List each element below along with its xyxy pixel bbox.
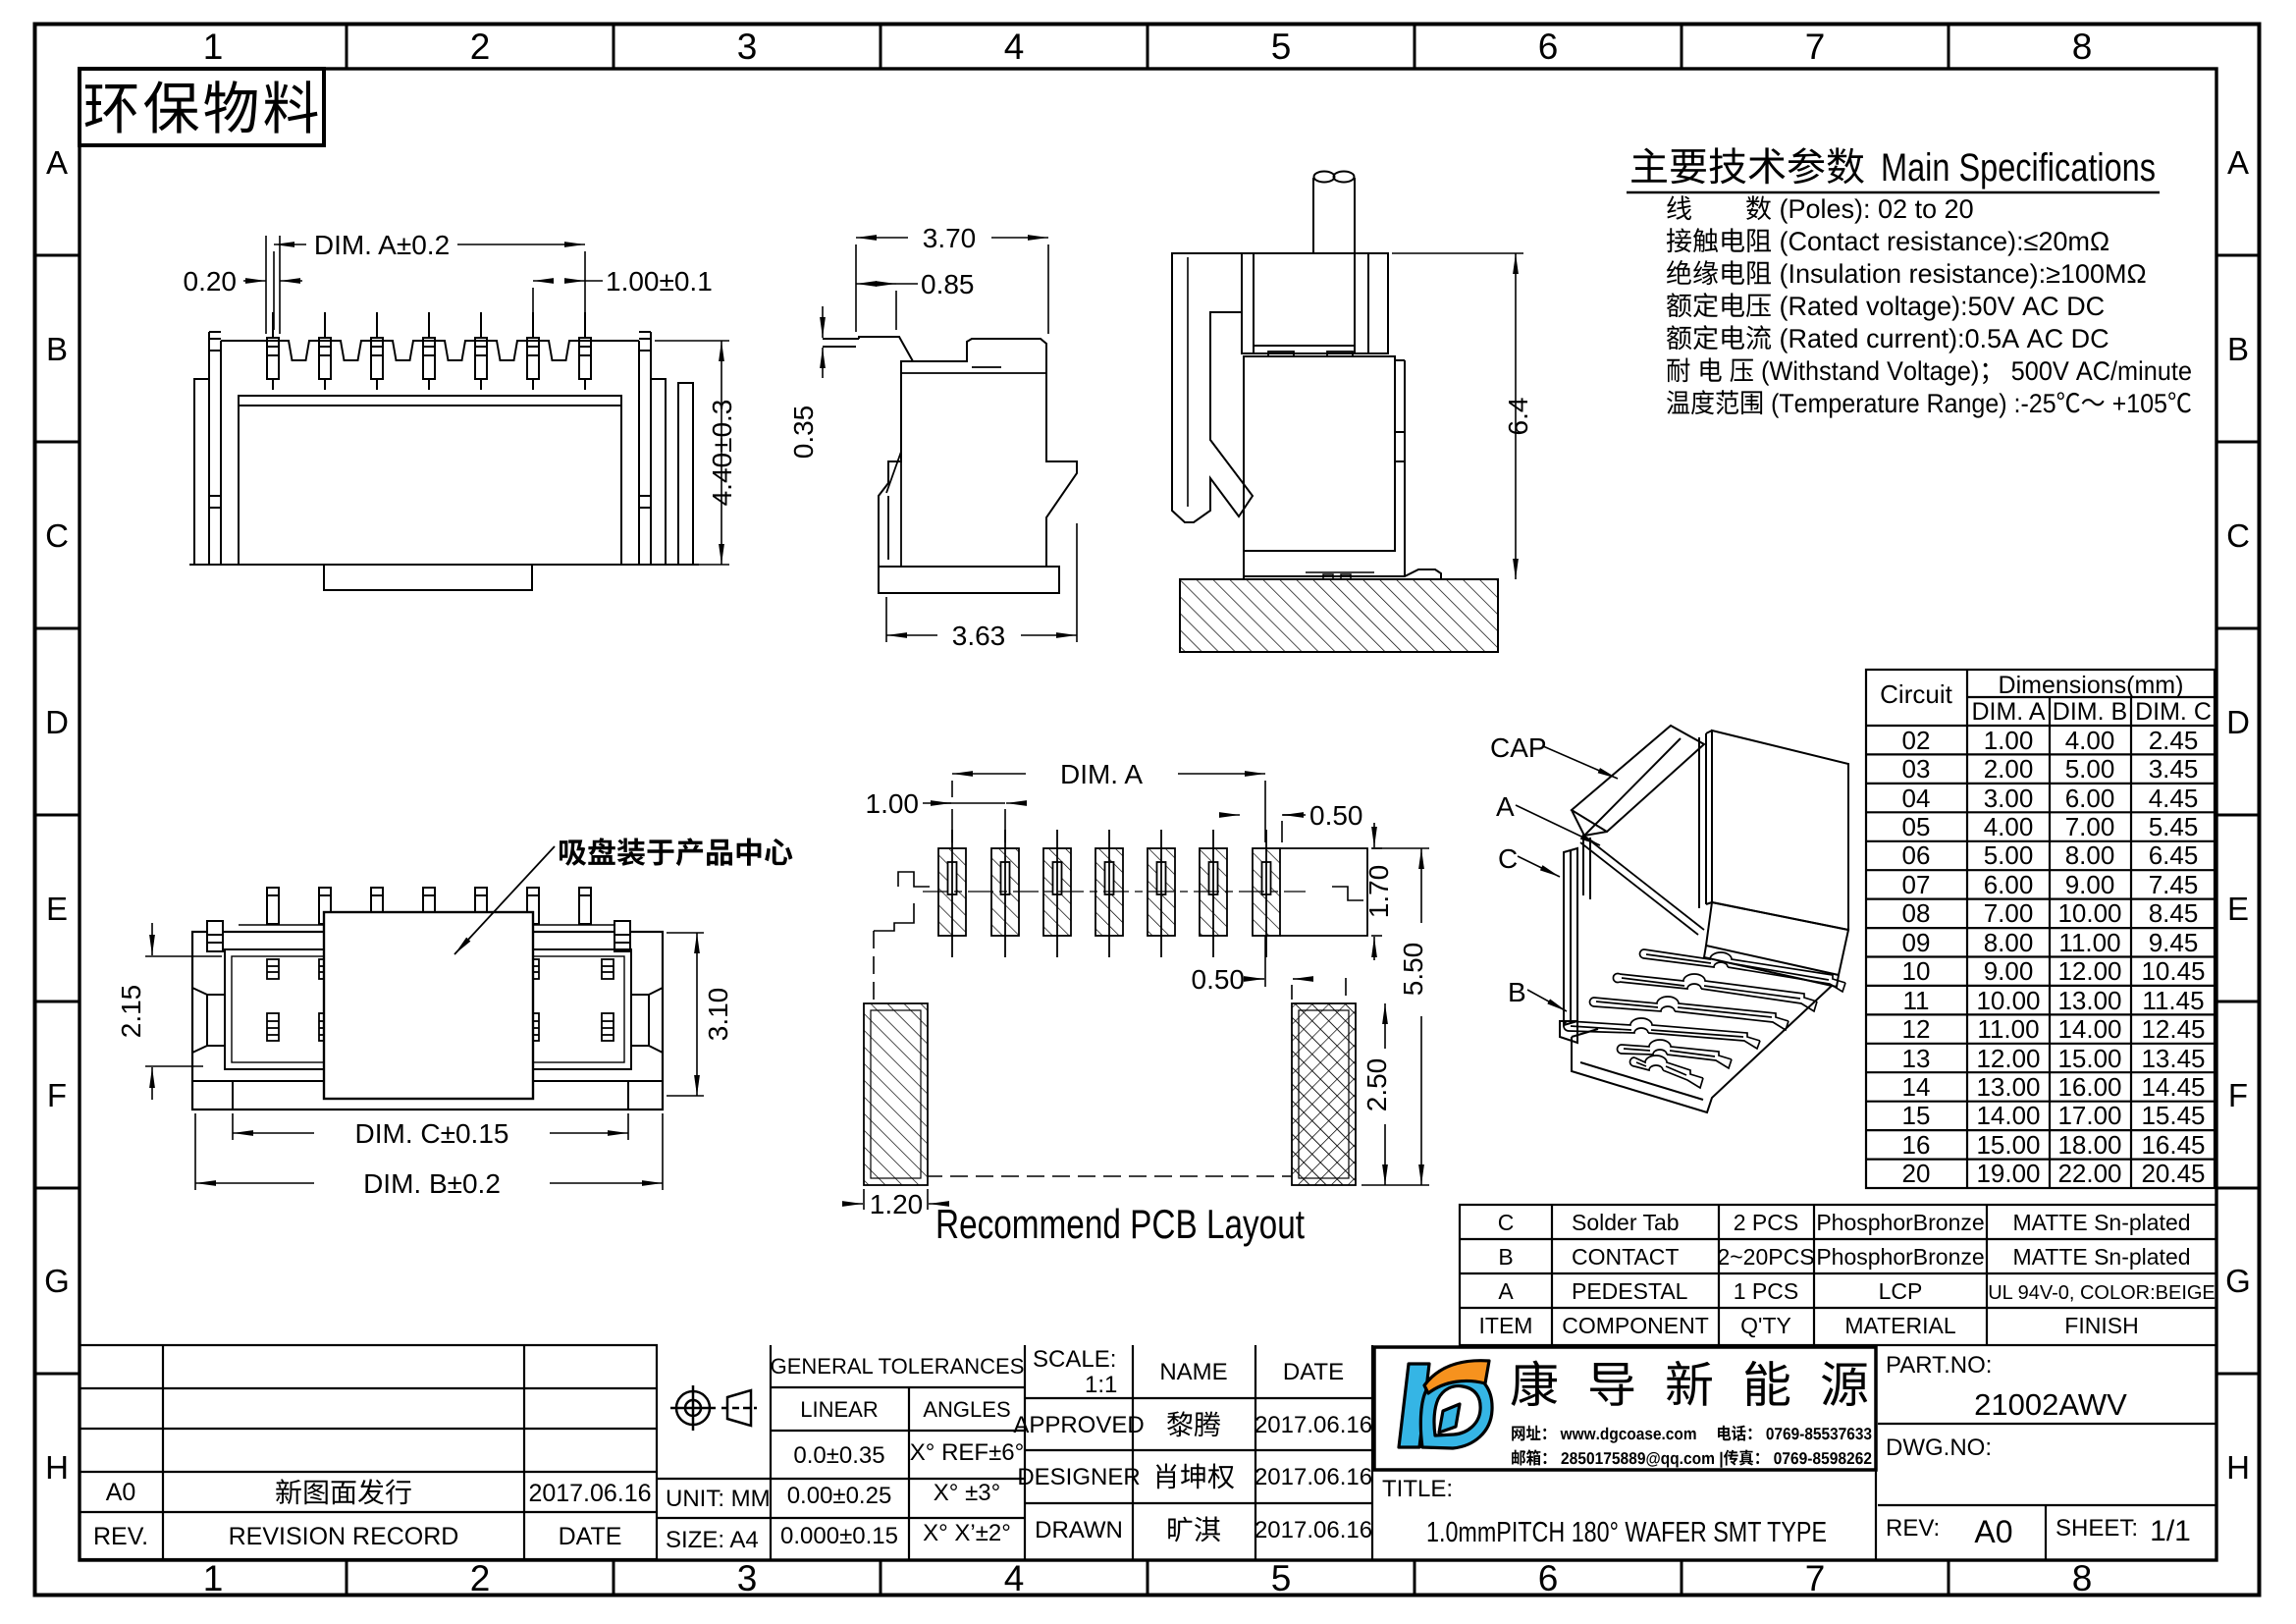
svg-text:08: 08: [1902, 898, 1931, 928]
svg-text:15.00: 15.00: [2057, 1044, 2121, 1073]
svg-text:B: B: [1508, 977, 1526, 1007]
svg-text:13.00: 13.00: [1976, 1072, 2040, 1102]
svg-text:3.63: 3.63: [952, 621, 1006, 651]
svg-text:0.35: 0.35: [788, 406, 819, 460]
svg-text:ANGLES: ANGLES: [923, 1397, 1010, 1422]
svg-text:A: A: [1498, 1278, 1514, 1304]
svg-text:0.00±0.25: 0.00±0.25: [787, 1483, 892, 1509]
svg-text:12.00: 12.00: [1976, 1044, 2040, 1073]
svg-text:1:1: 1:1: [1085, 1372, 1117, 1398]
svg-text:5.45: 5.45: [2149, 812, 2199, 841]
svg-text:07: 07: [1902, 870, 1931, 899]
svg-text:16: 16: [1902, 1130, 1931, 1160]
svg-text:SIZE: A4: SIZE: A4: [666, 1527, 759, 1553]
svg-text:11.00: 11.00: [2058, 928, 2120, 957]
svg-text:5.00: 5.00: [1984, 840, 2034, 870]
svg-text:14.00: 14.00: [2057, 1014, 2121, 1044]
svg-text:C: C: [1498, 843, 1518, 874]
svg-text:6.4: 6.4: [1503, 398, 1533, 436]
svg-text:6: 6: [1538, 27, 1559, 67]
svg-text:0.50: 0.50: [1192, 964, 1246, 995]
svg-text:LINEAR: LINEAR: [800, 1397, 878, 1422]
svg-text:3: 3: [737, 1558, 758, 1598]
svg-text:X° ±3°: X° ±3°: [934, 1480, 1000, 1506]
svg-text:X° X’±2°: X° X’±2°: [923, 1520, 1011, 1546]
svg-text:D: D: [45, 704, 69, 740]
svg-text:2.00: 2.00: [1984, 754, 2034, 784]
svg-text:8.00: 8.00: [2065, 840, 2115, 870]
svg-text:12.00: 12.00: [2057, 956, 2121, 986]
svg-text:ITEM: ITEM: [1479, 1313, 1533, 1338]
svg-text:DATE: DATE: [559, 1523, 622, 1550]
svg-text:E: E: [2227, 891, 2249, 927]
svg-text:A0: A0: [1974, 1514, 2012, 1549]
svg-text:14: 14: [1902, 1072, 1931, 1102]
svg-text:6.00: 6.00: [1984, 870, 2034, 899]
svg-text:4.45: 4.45: [2149, 784, 2199, 813]
svg-text:05: 05: [1902, 812, 1931, 841]
svg-text:H: H: [45, 1449, 69, 1486]
svg-text:6: 6: [1538, 1558, 1559, 1598]
svg-text:B: B: [2227, 331, 2249, 367]
svg-text:Q'TY: Q'TY: [1740, 1313, 1791, 1338]
svg-text:DIM. B: DIM. B: [2053, 698, 2127, 726]
svg-text:03: 03: [1902, 754, 1931, 784]
svg-text:MATERIAL: MATERIAL: [1844, 1313, 1956, 1338]
svg-text:2: 2: [470, 27, 491, 67]
svg-text:F: F: [47, 1077, 67, 1113]
svg-text:FINISH: FINISH: [2064, 1313, 2138, 1338]
svg-text:X° REF±6°: X° REF±6°: [910, 1439, 1024, 1466]
svg-text:CONTACT: CONTACT: [1572, 1244, 1679, 1270]
svg-text:2: 2: [470, 1558, 491, 1598]
svg-text:9.00: 9.00: [2065, 870, 2115, 899]
svg-text:4.40±0.3: 4.40±0.3: [707, 400, 737, 507]
svg-text:A0: A0: [106, 1479, 136, 1506]
svg-text:9.00: 9.00: [1984, 956, 2034, 986]
svg-text:09: 09: [1902, 928, 1931, 957]
svg-text:1 PCS: 1 PCS: [1734, 1278, 1798, 1304]
svg-text:MATTE Sn-plated: MATTE Sn-plated: [2012, 1210, 2190, 1235]
svg-text:PhosphorBronze: PhosphorBronze: [1816, 1210, 1984, 1235]
svg-text:Main Specifications: Main Specifications: [1881, 146, 2156, 189]
svg-text:2.45: 2.45: [2149, 726, 2199, 755]
svg-text:D: D: [2226, 704, 2250, 740]
svg-text:Dimensions(mm): Dimensions(mm): [1999, 672, 2184, 699]
svg-text:MATTE Sn-plated: MATTE Sn-plated: [2012, 1244, 2190, 1270]
svg-text:NAME: NAME: [1159, 1359, 1227, 1385]
svg-text:3.45: 3.45: [2149, 754, 2199, 784]
svg-text:2.50: 2.50: [1362, 1058, 1392, 1112]
svg-text:4: 4: [1004, 1558, 1025, 1598]
svg-text:DIM. C: DIM. C: [2135, 698, 2212, 726]
svg-text:DRAWN: DRAWN: [1035, 1517, 1123, 1543]
svg-text:17.00: 17.00: [2057, 1101, 2121, 1130]
svg-text:G: G: [44, 1263, 70, 1299]
svg-text:02: 02: [1902, 726, 1931, 755]
svg-text:DIM. A±0.2: DIM. A±0.2: [314, 230, 450, 260]
svg-text:2017.06.16: 2017.06.16: [528, 1480, 651, 1507]
svg-text:1: 1: [203, 1558, 224, 1598]
svg-text:06: 06: [1902, 840, 1931, 870]
svg-text:10: 10: [1902, 956, 1931, 986]
svg-text:6.45: 6.45: [2149, 840, 2199, 870]
svg-text:1.00: 1.00: [1984, 726, 2034, 755]
svg-text:CAP: CAP: [1490, 732, 1547, 763]
svg-text:REVISION RECORD: REVISION RECORD: [229, 1523, 459, 1550]
svg-text:A: A: [1496, 791, 1515, 822]
svg-text:5: 5: [1271, 1558, 1292, 1598]
svg-text:16.45: 16.45: [2141, 1130, 2205, 1160]
svg-text:2.15: 2.15: [116, 985, 146, 1039]
svg-text:DIM. C±0.15: DIM. C±0.15: [355, 1118, 509, 1149]
svg-text:11.00: 11.00: [1977, 1014, 2039, 1044]
svg-text:DIM. A: DIM. A: [1971, 698, 2045, 726]
svg-text:10.45: 10.45: [2141, 956, 2205, 986]
svg-text:0.20: 0.20: [184, 266, 238, 297]
svg-text:8: 8: [2072, 1558, 2093, 1598]
svg-text:7.00: 7.00: [1984, 898, 2034, 928]
svg-text:11: 11: [1903, 986, 1930, 1015]
svg-text:C: C: [2226, 517, 2250, 554]
svg-text:7.45: 7.45: [2149, 870, 2199, 899]
svg-text:11.45: 11.45: [2142, 986, 2204, 1015]
svg-text:18.00: 18.00: [2057, 1130, 2121, 1160]
svg-text:A: A: [2227, 144, 2249, 181]
svg-text:SHEET:: SHEET:: [2056, 1515, 2138, 1542]
svg-text:E: E: [46, 891, 68, 927]
svg-text:7: 7: [1805, 1558, 1826, 1598]
svg-text:1.0mmPITCH 180° WAFER SMT TYPE: 1.0mmPITCH 180° WAFER SMT TYPE: [1426, 1517, 1827, 1548]
svg-text:14.45: 14.45: [2141, 1072, 2205, 1102]
svg-text:REV.: REV.: [93, 1523, 148, 1550]
svg-text:4.00: 4.00: [1984, 812, 2034, 841]
svg-text:19.00: 19.00: [1976, 1159, 2040, 1188]
svg-text:1/1: 1/1: [2150, 1515, 2191, 1547]
svg-text:2017.06.16: 2017.06.16: [1255, 1464, 1372, 1490]
svg-text:2017.06.16: 2017.06.16: [1255, 1517, 1372, 1543]
svg-text:F: F: [2228, 1077, 2248, 1113]
svg-text:Recommend PCB Layout: Recommend PCB Layout: [935, 1201, 1305, 1247]
svg-text:8.45: 8.45: [2149, 898, 2199, 928]
svg-text:1: 1: [203, 27, 224, 67]
svg-text:1.70: 1.70: [1363, 865, 1394, 919]
svg-text:G: G: [2225, 1263, 2251, 1299]
svg-text:PEDESTAL: PEDESTAL: [1572, 1278, 1688, 1304]
svg-text:LCP: LCP: [1879, 1278, 1923, 1304]
svg-text:3.00: 3.00: [1984, 784, 2034, 813]
svg-text:7: 7: [1805, 27, 1826, 67]
svg-text:0.85: 0.85: [921, 269, 975, 299]
svg-text:5.00: 5.00: [2065, 754, 2115, 784]
svg-text:UNIT: MM: UNIT: MM: [666, 1486, 771, 1512]
svg-text:0.50: 0.50: [1309, 800, 1363, 831]
svg-text:04: 04: [1902, 784, 1931, 813]
svg-text:0.000±0.15: 0.000±0.15: [780, 1523, 898, 1549]
svg-text:15.45: 15.45: [2141, 1101, 2205, 1130]
svg-text:SCALE:: SCALE:: [1033, 1346, 1116, 1373]
svg-text:A: A: [46, 144, 68, 181]
svg-text:B: B: [46, 331, 68, 367]
svg-text:PART.NO:: PART.NO:: [1886, 1352, 1992, 1379]
svg-text:C: C: [1498, 1210, 1515, 1235]
svg-text:10.00: 10.00: [2057, 898, 2121, 928]
svg-text:9.45: 9.45: [2149, 928, 2199, 957]
svg-text:2017.06.16: 2017.06.16: [1255, 1412, 1372, 1438]
svg-text:5: 5: [1271, 27, 1292, 67]
svg-text:H: H: [2226, 1449, 2250, 1486]
svg-text:2~20PCS: 2~20PCS: [1717, 1244, 1814, 1270]
svg-text:1.00±0.1: 1.00±0.1: [606, 266, 713, 297]
svg-text:DWG.NO:: DWG.NO:: [1886, 1435, 1992, 1461]
svg-text:6.00: 6.00: [2065, 784, 2115, 813]
svg-text:DESIGNER: DESIGNER: [1017, 1464, 1140, 1490]
svg-text:8: 8: [2072, 27, 2093, 67]
svg-text:15.00: 15.00: [1976, 1130, 2040, 1160]
svg-text:1.20: 1.20: [870, 1189, 924, 1219]
svg-text:8.00: 8.00: [1984, 928, 2034, 957]
svg-text:7.00: 7.00: [2065, 812, 2115, 841]
svg-text:12: 12: [1902, 1014, 1931, 1044]
svg-text:Circuit: Circuit: [1880, 679, 1952, 709]
svg-text:13.45: 13.45: [2141, 1044, 2205, 1073]
svg-text:UL 94V-0, COLOR:BEIGE: UL 94V-0, COLOR:BEIGE: [1988, 1282, 2216, 1304]
svg-text:4.00: 4.00: [2065, 726, 2115, 755]
svg-text:TITLE:: TITLE:: [1382, 1476, 1453, 1502]
svg-text:REV:: REV:: [1886, 1515, 1940, 1542]
svg-text:16.00: 16.00: [2057, 1072, 2121, 1102]
svg-text:14.00: 14.00: [1976, 1101, 2040, 1130]
svg-text:12.45: 12.45: [2141, 1014, 2205, 1044]
svg-text:3.70: 3.70: [923, 223, 977, 253]
svg-text:0.0±0.35: 0.0±0.35: [793, 1442, 884, 1469]
svg-text:COMPONENT: COMPONENT: [1562, 1313, 1709, 1338]
svg-text:Solder Tab: Solder Tab: [1572, 1210, 1680, 1235]
svg-text:4: 4: [1004, 27, 1025, 67]
svg-text:1.00: 1.00: [866, 788, 920, 819]
svg-text:22.00: 22.00: [2057, 1159, 2121, 1188]
svg-text:5.50: 5.50: [1398, 943, 1428, 997]
svg-text:13: 13: [1902, 1044, 1931, 1073]
svg-text:20: 20: [1902, 1159, 1931, 1188]
svg-text:13.00: 13.00: [2057, 986, 2121, 1015]
svg-text:GENERAL TOLERANCES: GENERAL TOLERANCES: [771, 1354, 1025, 1379]
svg-text:2 PCS: 2 PCS: [1734, 1210, 1798, 1235]
svg-text:APPROVED: APPROVED: [1013, 1412, 1144, 1438]
svg-text:C: C: [45, 517, 69, 554]
svg-text:3: 3: [737, 27, 758, 67]
svg-text:DATE: DATE: [1283, 1359, 1344, 1385]
svg-text:21002AWV: 21002AWV: [1974, 1387, 2127, 1422]
svg-text:20.45: 20.45: [2141, 1159, 2205, 1188]
svg-text:B: B: [1498, 1244, 1513, 1270]
svg-text:10.00: 10.00: [1976, 986, 2040, 1015]
svg-text:15: 15: [1902, 1101, 1931, 1130]
svg-text:PhosphorBronze: PhosphorBronze: [1816, 1244, 1984, 1270]
svg-text:3.10: 3.10: [703, 988, 733, 1042]
svg-text:DIM. A: DIM. A: [1060, 759, 1143, 789]
svg-text:DIM. B±0.2: DIM. B±0.2: [363, 1168, 501, 1199]
